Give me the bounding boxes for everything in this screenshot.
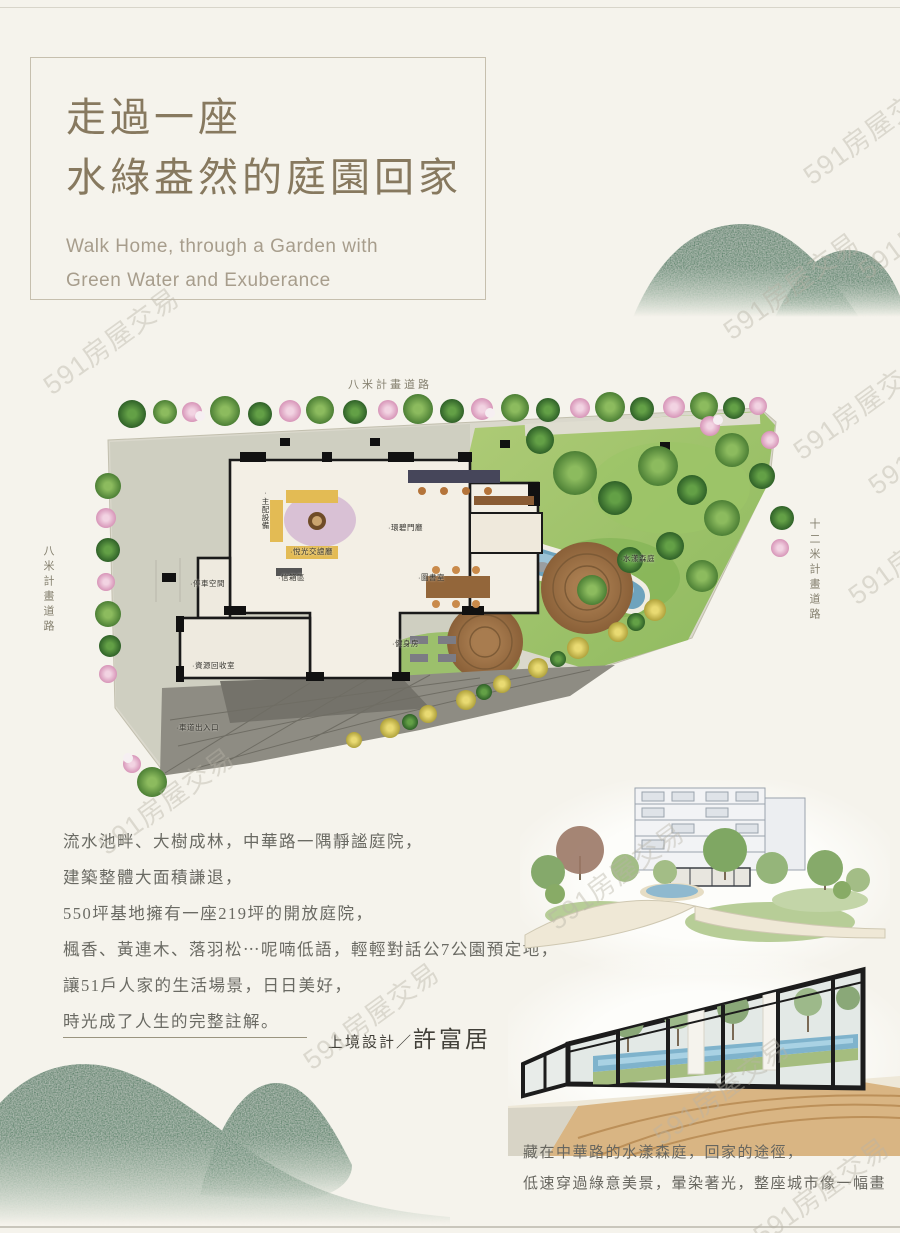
- plan-label-entry-hall: ·環碧門廳: [388, 522, 423, 533]
- road-label-right: 十二米計畫道路: [806, 518, 822, 623]
- plan-label-gym: ·健身房: [392, 638, 419, 649]
- plan-label-parking: ·停車空間: [190, 578, 225, 589]
- plan-label-main-equipment: ·主配設備: [260, 488, 271, 530]
- designer-credit: 上境設計／許富居: [328, 1020, 491, 1054]
- road-label-left: 八米計畫道路: [40, 545, 56, 635]
- site-plan-illustration: [70, 378, 830, 808]
- page-title-line2: 水綠盎然的庭園回家: [66, 148, 485, 208]
- watermark: 591房屋交易: [714, 222, 866, 348]
- page-subtitle-line2: Green Water and Exuberance: [66, 264, 485, 298]
- description-line: 楓香、黃連木、落羽松⋯呢喃低語，輕輕對話公7公園預定地，: [63, 932, 559, 968]
- watermark: 591房屋交易: [859, 377, 900, 503]
- plan-label-library: ·圖書室: [418, 572, 445, 583]
- plan-label-driveway-exit: ·車道出入口: [176, 722, 219, 733]
- description-line: 建築整體大面積謙退，: [63, 860, 559, 896]
- hills-decoration-top-right: [625, 212, 900, 317]
- watermark: 591房屋交易: [794, 67, 900, 193]
- page-title-line1: 走過一座: [66, 88, 485, 148]
- road-label-top: 八米計畫道路: [348, 376, 432, 392]
- designer-divider-line: [63, 1037, 307, 1038]
- watermark: 591房屋交易: [839, 487, 900, 613]
- description-line: 讓51戶人家的生活場景，日日美好，: [63, 968, 559, 1004]
- description-paragraph: 流水池畔、大樹成林，中華路一隅靜謐庭院， 建築整體大面積謙退， 550坪基地擁有…: [63, 824, 559, 1040]
- designer-name: 許富居: [413, 1027, 491, 1052]
- plan-label-recycling: ·資源回收室: [192, 660, 235, 671]
- plan-label-mailbox: ·信箱區: [278, 572, 305, 583]
- title-box: 走過一座 水綠盎然的庭園回家 Walk Home, through a Gard…: [30, 57, 486, 300]
- page-subtitle-line1: Walk Home, through a Garden with: [66, 230, 485, 264]
- designer-prefix: 上境設計／: [328, 1035, 413, 1051]
- caption-line: 藏在中華路的水漾森庭，回家的途徑，: [523, 1138, 886, 1169]
- description-line: 550坪基地擁有一座219坪的開放庭院，: [63, 896, 559, 932]
- plan-label-water-garden: ·水漾森庭: [620, 553, 655, 564]
- top-border-line: [0, 7, 900, 8]
- poster-page: 走過一座 水綠盎然的庭園回家 Walk Home, through a Gard…: [0, 0, 900, 1233]
- rendering-building-garden: [520, 780, 890, 975]
- rendering-glass-pavilion: [508, 956, 900, 1156]
- hills-decoration-bottom-left: [0, 1055, 455, 1230]
- plan-label-lounge: ·悅光交誼廳: [290, 546, 333, 557]
- watermark: 591房屋交易: [849, 162, 900, 288]
- caption-line: 低速穿過綠意美景，暈染著光，整座城市像一幅畫: [523, 1169, 886, 1200]
- caption-paragraph: 藏在中華路的水漾森庭，回家的途徑， 低速穿過綠意美景，暈染著光，整座城市像一幅畫: [523, 1138, 886, 1200]
- bottom-border-line: [0, 1226, 900, 1228]
- description-line: 流水池畔、大樹成林，中華路一隅靜謐庭院，: [63, 824, 559, 860]
